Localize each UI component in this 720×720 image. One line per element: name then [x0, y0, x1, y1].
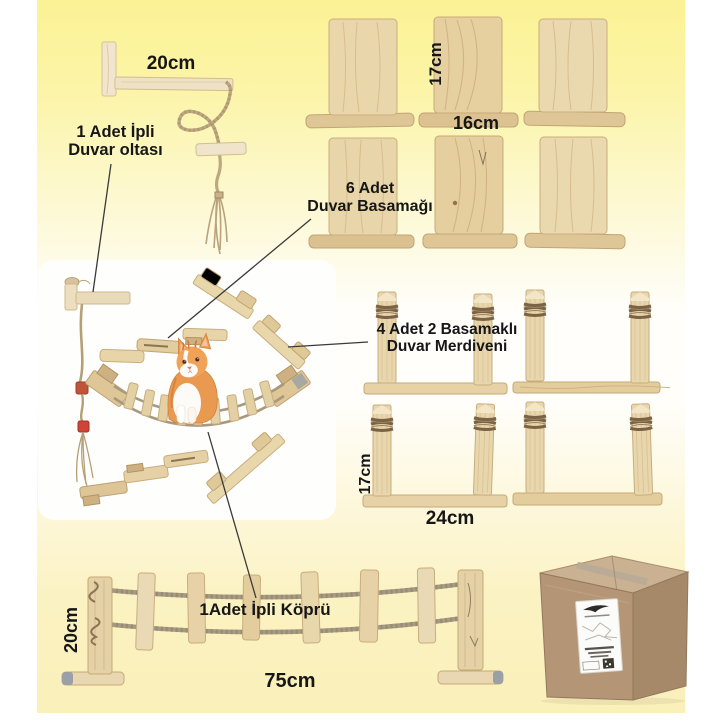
wall-steps-photo	[295, 10, 645, 260]
box-qr-code	[603, 658, 615, 669]
ladders-height-label: 17cm	[357, 434, 379, 514]
ladders-width-label: 24cm	[400, 508, 500, 529]
wall-ladders-photo	[350, 282, 670, 512]
steps-caption-line2: Duvar Basamağı	[270, 198, 470, 216]
rod-width-label: 20cm	[121, 53, 221, 74]
installed-scene-photo	[38, 258, 338, 522]
rod-caption-line1: 1 Adet İpli	[33, 123, 198, 141]
steps-width-label: 16cm	[426, 113, 526, 133]
scene-wall-step	[100, 349, 144, 363]
rod-crossbar	[196, 142, 246, 156]
ladders-caption: 4 Adet 2 Basamaklı Duvar Merdiveni	[347, 321, 547, 356]
wall-step	[306, 19, 414, 128]
ladders-caption-line2: Duvar Merdiveni	[347, 338, 547, 355]
steps-height-label: 17cm	[426, 24, 448, 104]
rod-tassel	[206, 192, 227, 254]
ladders-caption-line1: 4 Adet 2 Basamaklı	[347, 321, 547, 338]
wall-step	[524, 19, 625, 127]
scene-wall-step	[137, 338, 182, 353]
product-figure: 20cm 1 Adet İpli Duvar oltası 17cm 16cm …	[0, 0, 720, 720]
steps-caption-line1: 6 Adet	[270, 180, 470, 198]
wall-step	[525, 137, 625, 249]
bridge-width-label: 75cm	[240, 670, 340, 692]
wall-ladder	[513, 402, 662, 505]
rod-caption-line2: Duvar oltası	[33, 141, 198, 159]
wall-ladder	[363, 404, 507, 507]
bridge-caption: 1Adet İpli Köprü	[165, 600, 365, 619]
shipping-box-photo	[525, 555, 695, 705]
rod-caption: 1 Adet İpli Duvar oltası	[33, 123, 198, 160]
bridge-height-label: 20cm	[61, 580, 83, 680]
box-label	[576, 599, 623, 674]
box-right-face	[633, 572, 688, 700]
steps-caption: 6 Adet Duvar Basamağı	[270, 180, 470, 216]
